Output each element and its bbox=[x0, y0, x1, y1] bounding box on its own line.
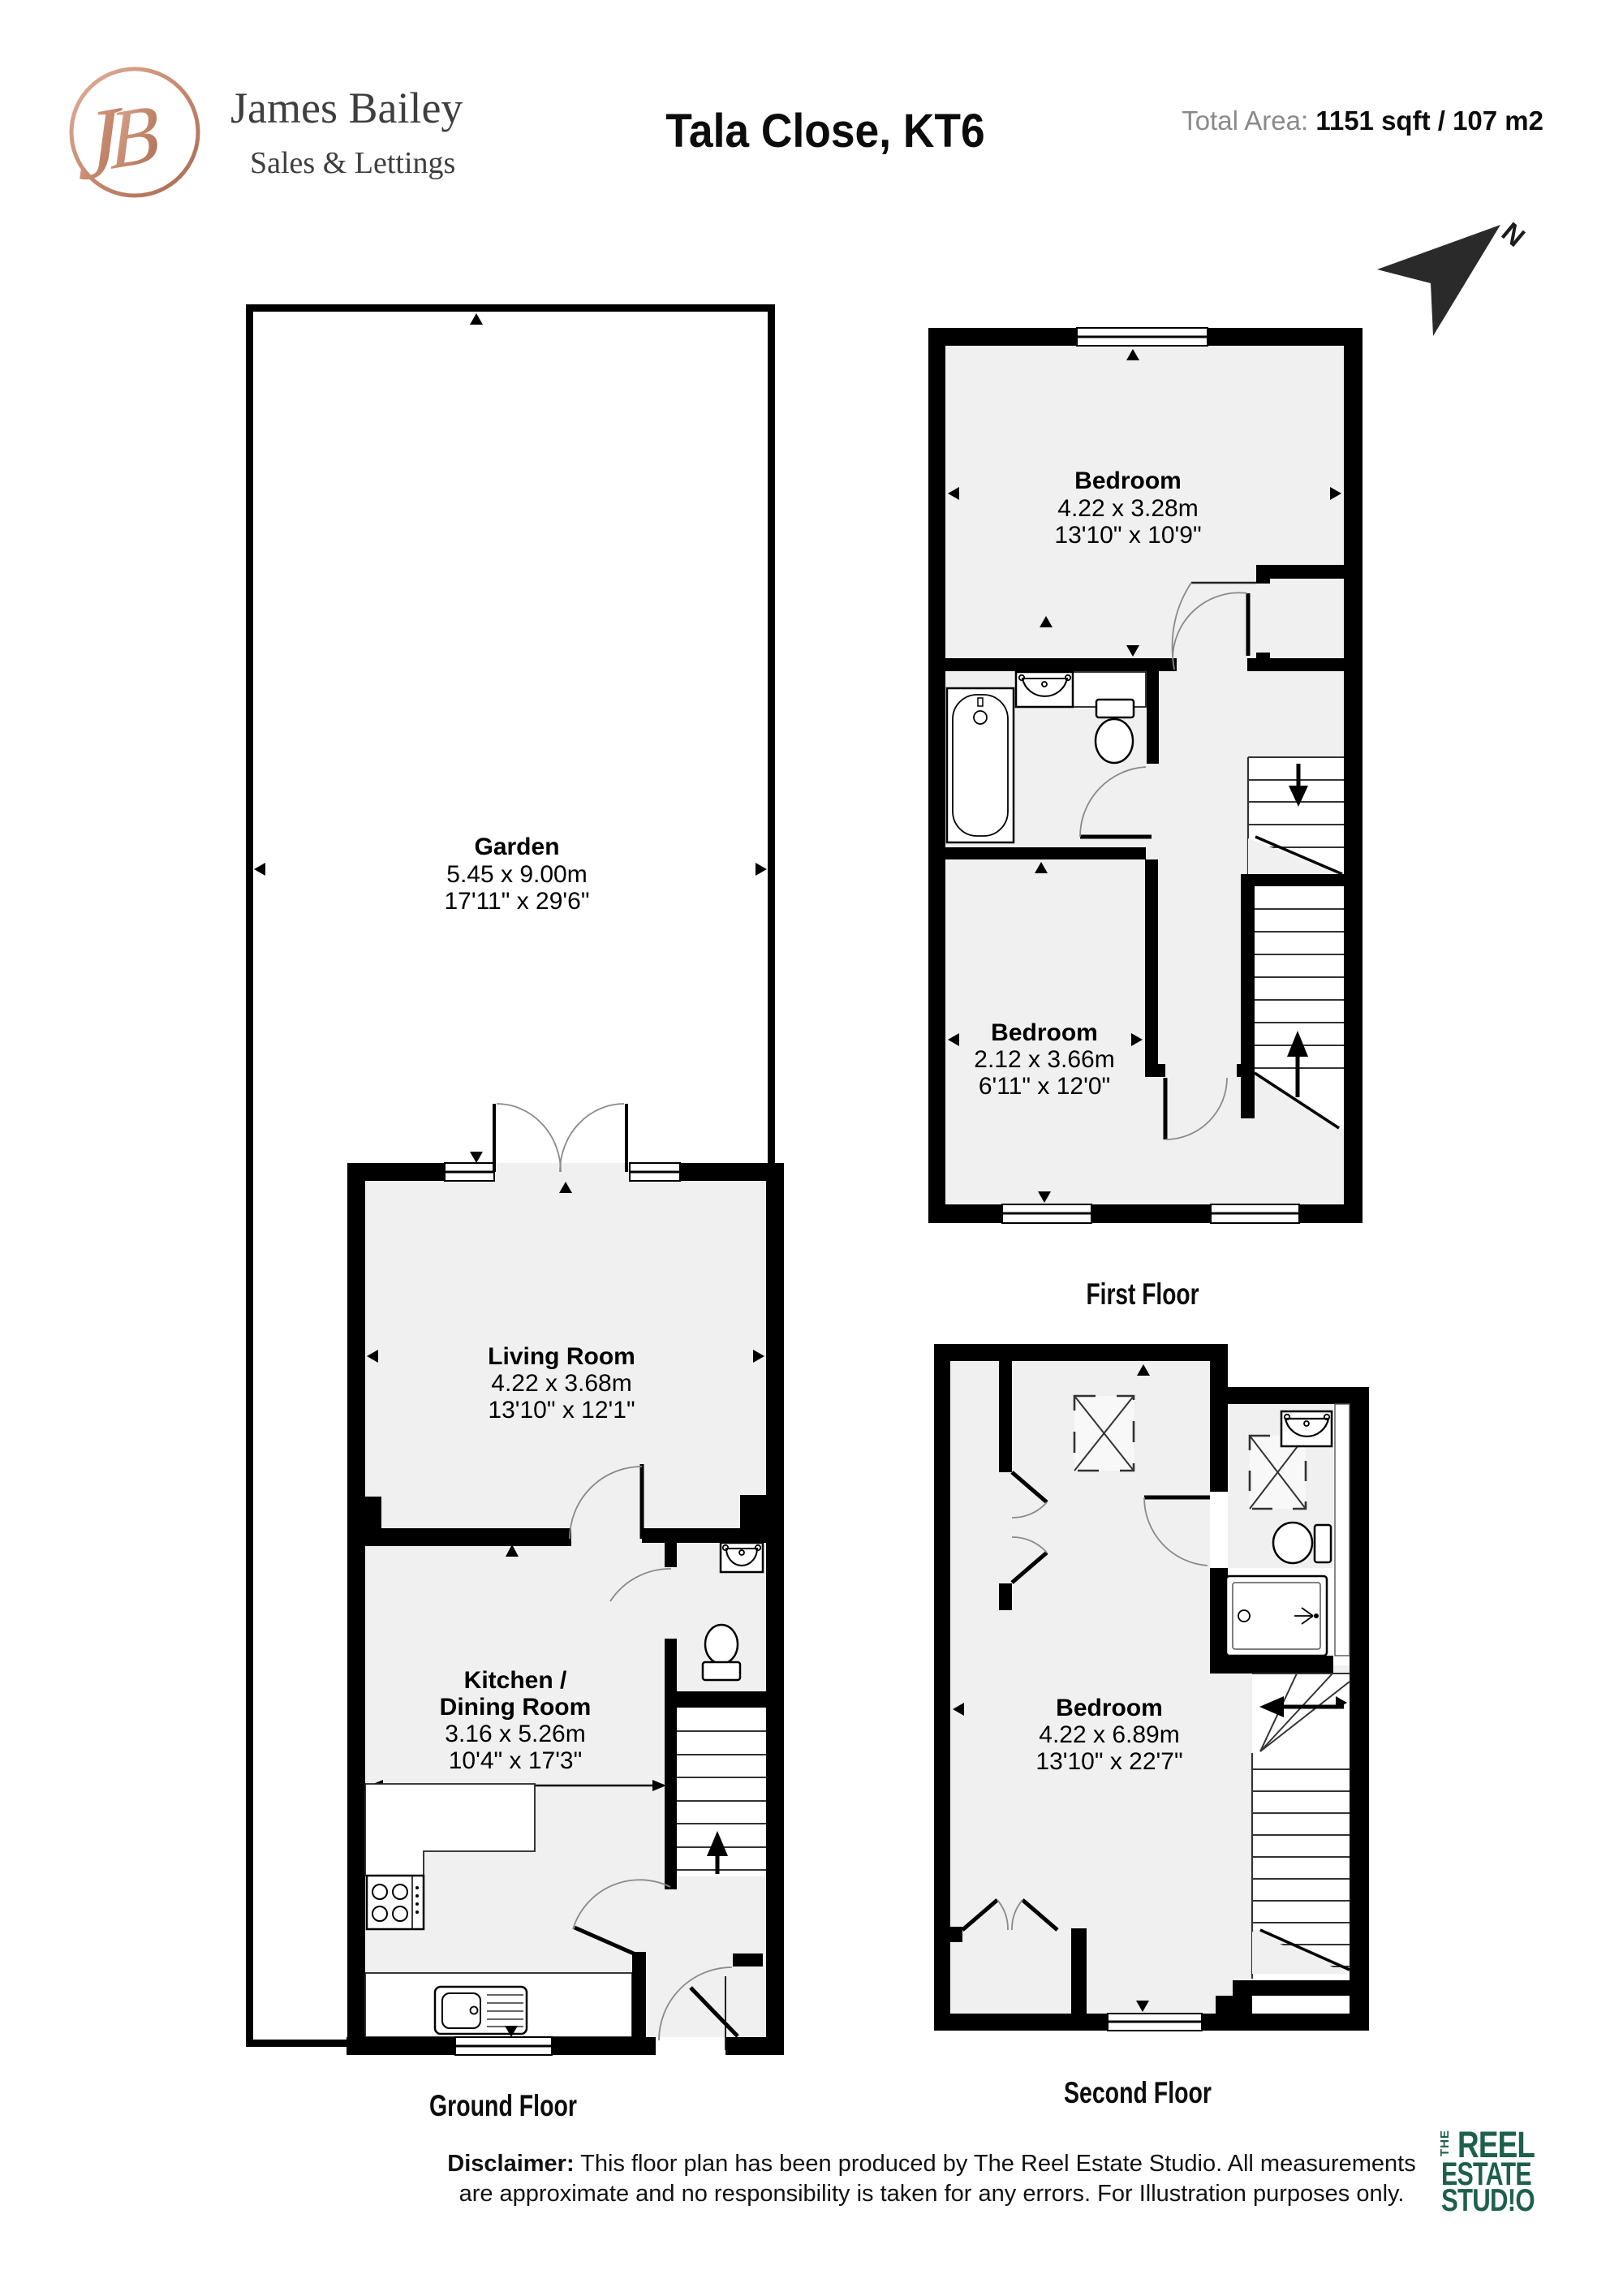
svg-text:Dining Room: Dining Room bbox=[440, 1694, 592, 1721]
svg-text:6'11" x 12'0": 6'11" x 12'0" bbox=[979, 1073, 1110, 1100]
svg-text:Garden: Garden bbox=[474, 834, 559, 860]
svg-text:2.12 x 3.66m: 2.12 x 3.66m bbox=[974, 1046, 1114, 1073]
svg-text:13'10" x 10'9": 13'10" x 10'9" bbox=[1054, 522, 1201, 549]
svg-text:Living Room: Living Room bbox=[488, 1343, 635, 1370]
svg-text:5.45 x 9.00m: 5.45 x 9.00m bbox=[446, 861, 587, 888]
svg-text:4.22 x 3.28m: 4.22 x 3.28m bbox=[1057, 495, 1198, 522]
svg-text:17'11" x 29'6": 17'11" x 29'6" bbox=[445, 888, 590, 915]
svg-text:N: N bbox=[1496, 217, 1530, 253]
svg-text:Bedroom: Bedroom bbox=[991, 1019, 1098, 1046]
svg-text:4.22 x 6.89m: 4.22 x 6.89m bbox=[1039, 1721, 1179, 1748]
svg-text:3.16 x 5.26m: 3.16 x 5.26m bbox=[445, 1721, 585, 1747]
svg-text:Bedroom: Bedroom bbox=[1074, 467, 1182, 494]
svg-text:13'10" x 22'7": 13'10" x 22'7" bbox=[1035, 1748, 1182, 1775]
svg-text:B: B bbox=[108, 87, 161, 187]
svg-text:Kitchen /: Kitchen / bbox=[464, 1667, 567, 1694]
svg-text:13'10" x 12'1": 13'10" x 12'1" bbox=[488, 1397, 635, 1424]
svg-text:4.22 x 3.68m: 4.22 x 3.68m bbox=[491, 1370, 631, 1397]
svg-text:10'4" x 17'3": 10'4" x 17'3" bbox=[449, 1747, 583, 1774]
svg-text:Bedroom: Bedroom bbox=[1056, 1695, 1163, 1721]
